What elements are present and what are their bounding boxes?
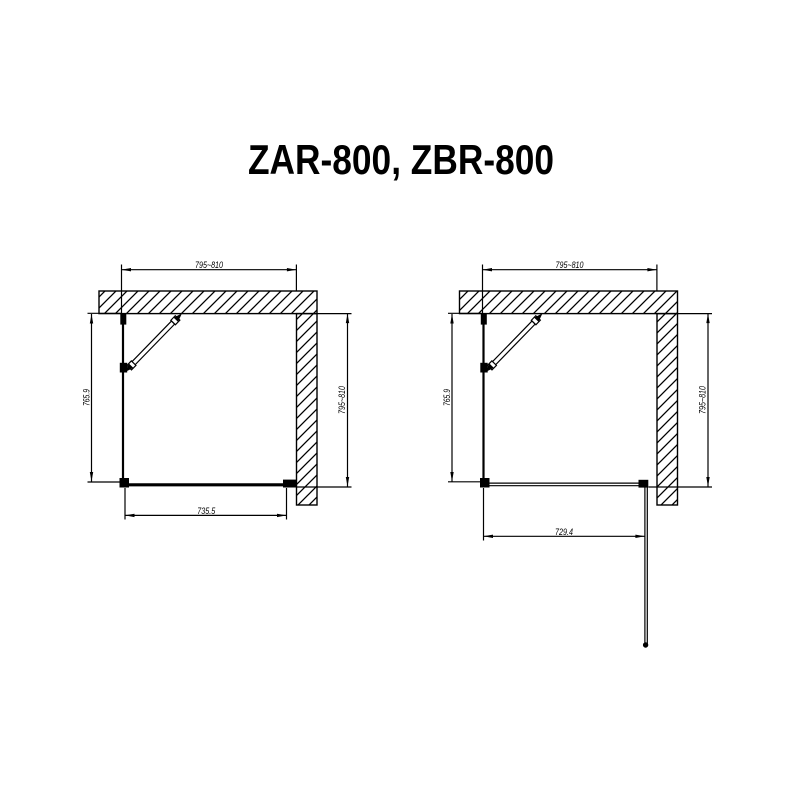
svg-text:ZAR-800, ZBR-800: ZAR-800, ZBR-800: [248, 136, 554, 183]
svg-text:795~810: 795~810: [195, 260, 224, 271]
svg-text:795~810: 795~810: [556, 260, 585, 271]
svg-text:765.9: 765.9: [442, 388, 453, 406]
svg-text:729.4: 729.4: [555, 527, 573, 538]
svg-text:735.5: 735.5: [197, 506, 216, 517]
svg-text:795~810: 795~810: [697, 385, 708, 414]
svg-text:795~810: 795~810: [337, 385, 348, 414]
svg-text:765.9: 765.9: [82, 388, 93, 406]
